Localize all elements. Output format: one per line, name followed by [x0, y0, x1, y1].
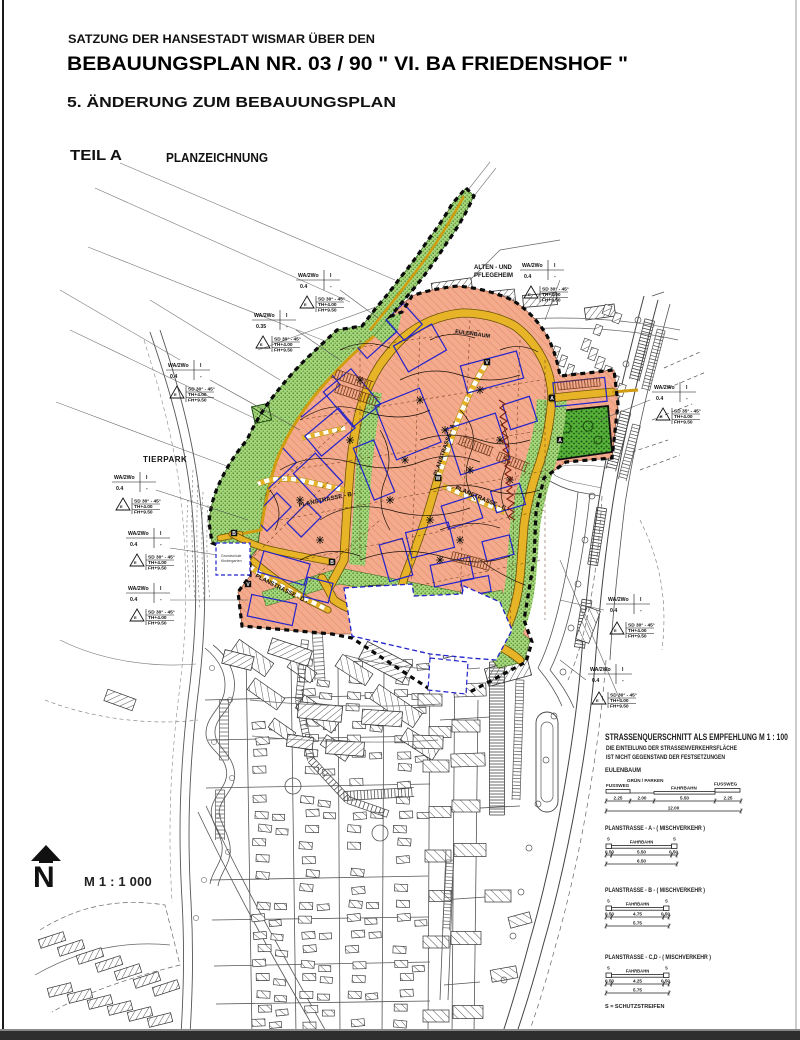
svg-text:FH+9.50: FH+9.50 [318, 308, 337, 314]
svg-text:WA/2Wo: WA/2Wo [128, 586, 149, 592]
svg-text:0.4: 0.4 [610, 608, 617, 614]
svg-text:-: - [200, 374, 202, 380]
svg-text:2.00: 2.00 [638, 795, 647, 800]
svg-text:TH+4.00: TH+4.00 [148, 560, 167, 566]
svg-text:TH+4.00: TH+4.00 [134, 504, 153, 510]
svg-text:ALTEN - UND: ALTEN - UND [474, 265, 513, 271]
svg-text:-: - [640, 608, 642, 614]
svg-text:5. ÄNDERUNG ZUM BEBAUUNGSPLA: 5. ÄNDERUNG ZUM BEBAUUNGSPLAN [67, 94, 396, 111]
svg-text:FH+9.50: FH+9.50 [148, 566, 167, 572]
svg-text:0.50: 0.50 [605, 911, 614, 916]
svg-text:5.50: 5.50 [680, 795, 689, 800]
svg-text:PLANZEICHNUNG: PLANZEICHNUNG [166, 151, 268, 165]
svg-text:TH+4.00: TH+4.00 [542, 292, 561, 298]
svg-text:WA/2Wo: WA/2Wo [254, 313, 275, 319]
svg-text:TH+4.00: TH+4.00 [610, 698, 629, 704]
svg-text:WA/2Wo: WA/2Wo [608, 597, 629, 603]
svg-text:WA/2Wo: WA/2Wo [128, 531, 149, 537]
svg-text:S: S [665, 899, 668, 904]
svg-text:EULENBAUM: EULENBAUM [605, 767, 641, 774]
svg-text:0.4: 0.4 [130, 542, 137, 548]
svg-text:TH+4.00: TH+4.00 [148, 615, 167, 621]
svg-text:5.75: 5.75 [633, 920, 642, 925]
svg-text:A: A [558, 438, 562, 444]
svg-text:-: - [622, 678, 624, 684]
svg-text:Grundschule: Grundschule [221, 554, 241, 558]
svg-text:S: S [665, 966, 668, 971]
svg-text:B: B [330, 560, 334, 566]
svg-text:12.00: 12.00 [668, 805, 680, 810]
svg-text:FH+9.50: FH+9.50 [610, 704, 629, 710]
svg-text:FAHRBAHN: FAHRBAHN [671, 786, 697, 791]
svg-text:FAHRBAHN: FAHRBAHN [626, 969, 650, 974]
svg-text:E: E [528, 292, 531, 297]
svg-text:TH+4.00: TH+4.00 [274, 342, 293, 348]
svg-text:0.4: 0.4 [592, 678, 599, 684]
svg-text:PLANSTRASSE - A - ( MISCHVER: PLANSTRASSE - A - ( MISCHVERKEHR ) [605, 825, 705, 832]
svg-text:E: E [260, 342, 263, 347]
svg-text:0.50: 0.50 [669, 849, 678, 854]
svg-text:TEIL A: TEIL A [70, 147, 122, 164]
svg-text:STRASSENQUERSCHNITT ALS EMPFEH: STRASSENQUERSCHNITT ALS EMPFEHLUNG M 1 :… [605, 732, 788, 742]
svg-text:0.50: 0.50 [605, 849, 614, 854]
svg-text:PLANSTRASSE - B - ( MISCHVER: PLANSTRASSE - B - ( MISCHVERKEHR ) [605, 887, 705, 894]
svg-text:-: - [160, 542, 162, 548]
svg-text:S: S [607, 966, 610, 971]
svg-text:BEBAUUNGSPLAN NR. 03 / 90 ": BEBAUUNGSPLAN NR. 03 / 90 " VI. BA FRIED… [67, 54, 628, 75]
svg-text:5.75: 5.75 [633, 987, 642, 992]
svg-text:0.4: 0.4 [656, 396, 663, 402]
svg-text:SD 30° - 45°: SD 30° - 45° [274, 337, 301, 343]
svg-text:E: E [174, 392, 177, 397]
svg-text:E: E [596, 698, 599, 703]
svg-text:S: S [673, 837, 676, 842]
svg-text:Kindergarten: Kindergarten [221, 559, 242, 563]
svg-text:WA/2Wo: WA/2Wo [654, 385, 675, 391]
svg-text:-: - [554, 274, 556, 280]
svg-text:0.35: 0.35 [256, 324, 266, 330]
svg-text:FAHRBAHN: FAHRBAHN [630, 840, 654, 845]
svg-text:-: - [686, 396, 688, 402]
svg-text:0.4: 0.4 [116, 486, 123, 492]
svg-text:SD 30° - 45°: SD 30° - 45° [148, 555, 175, 561]
svg-text:W: W [436, 476, 441, 482]
svg-text:FUSSWEG: FUSSWEG [606, 783, 630, 788]
svg-text:SD 30° - 45°: SD 30° - 45° [134, 499, 161, 505]
svg-text:TH+4.00: TH+4.00 [628, 628, 647, 634]
svg-text:TIERPARK: TIERPARK [143, 455, 187, 464]
svg-text:E: E [120, 504, 123, 509]
svg-text:TH+4.00: TH+4.00 [318, 302, 337, 308]
svg-text:0.50: 0.50 [661, 978, 670, 983]
svg-text:5.50: 5.50 [637, 849, 646, 854]
svg-text:0.4: 0.4 [524, 274, 531, 280]
svg-text:FH+9.50: FH+9.50 [674, 420, 693, 426]
svg-text:E: E [134, 560, 137, 565]
svg-text:PLANSTRASSE - C,D - ( MISCHV: PLANSTRASSE - C,D - ( MISCHVERKEHR ) [605, 954, 711, 961]
svg-text:SD 30° - 45°: SD 30° - 45° [610, 693, 637, 699]
svg-text:E: E [660, 414, 663, 419]
svg-text:S: S [607, 899, 610, 904]
svg-text:B: B [232, 531, 236, 537]
svg-text:6.50: 6.50 [637, 858, 646, 863]
svg-text:-: - [330, 284, 332, 290]
svg-text:N: N [33, 861, 55, 894]
svg-text:-: - [286, 324, 288, 330]
svg-text:-: - [146, 486, 148, 492]
svg-text:TH+4.00: TH+4.00 [188, 392, 207, 398]
svg-text:SATZUNG DER HANSESTADT WISM: SATZUNG DER HANSESTADT WISMAR ÜBER DEN [68, 33, 375, 46]
svg-text:FAHRBAHN: FAHRBAHN [626, 902, 650, 907]
svg-text:M 1 : 1 000: M 1 : 1 000 [84, 874, 152, 889]
svg-text:SD 30° - 45°: SD 30° - 45° [318, 297, 345, 303]
svg-text:FH+9.50: FH+9.50 [628, 634, 647, 640]
svg-text:WA/2Wo: WA/2Wo [114, 475, 135, 481]
svg-text:WA/2Wo: WA/2Wo [298, 273, 319, 279]
svg-text:2.25: 2.25 [724, 795, 733, 800]
svg-text:TH+4.00: TH+4.00 [674, 414, 693, 420]
svg-text:GRÜN / PARKEN: GRÜN / PARKEN [627, 777, 664, 783]
svg-text:DIE EINTEILUNG DER STRASSENVER: DIE EINTEILUNG DER STRASSENVERKEHRSFLÄCH… [606, 745, 737, 752]
svg-text:E: E [134, 615, 137, 620]
svg-text:0.4: 0.4 [170, 374, 177, 380]
svg-text:WA/2Wo: WA/2Wo [590, 667, 611, 673]
svg-text:FH+9.50: FH+9.50 [274, 348, 293, 354]
svg-text:0.4: 0.4 [300, 284, 307, 290]
svg-text:WA/2Wo: WA/2Wo [522, 263, 543, 269]
svg-text:PFLEGEHEIM: PFLEGEHEIM [474, 273, 513, 279]
svg-text:FH+9.50: FH+9.50 [188, 398, 207, 404]
svg-text:FH+9.50: FH+9.50 [134, 510, 153, 516]
svg-text:SD 30° - 45°: SD 30° - 45° [628, 623, 655, 629]
svg-text:SD 30° - 45°: SD 30° - 45° [148, 610, 175, 616]
svg-text:E: E [304, 302, 307, 307]
svg-text:S: S [607, 837, 610, 842]
svg-text:2.25: 2.25 [614, 795, 623, 800]
svg-text:4.25: 4.25 [633, 978, 642, 983]
svg-text:WA/2Wo: WA/2Wo [168, 363, 189, 369]
svg-text:0.50: 0.50 [661, 911, 670, 916]
svg-text:-: - [160, 597, 162, 603]
svg-text:IST NICHT GEGENSTAND DER FESTS: IST NICHT GEGENSTAND DER FESTSETZUNGEN [606, 754, 725, 761]
svg-text:A: A [550, 396, 554, 402]
svg-text:FH+9.50: FH+9.50 [148, 621, 167, 627]
svg-text:S = SCHUTZSTREIFEN: S = SCHUTZSTREIFEN [605, 1004, 664, 1010]
svg-text:4.75: 4.75 [633, 911, 642, 916]
svg-text:0.50: 0.50 [605, 978, 614, 983]
svg-text:0.4: 0.4 [130, 597, 137, 603]
svg-text:FUSSWEG: FUSSWEG [714, 782, 738, 787]
svg-text:SD 30° - 45°: SD 30° - 45° [188, 387, 215, 393]
svg-text:SD 35° - 45°: SD 35° - 45° [674, 409, 701, 415]
svg-text:E: E [614, 628, 617, 633]
